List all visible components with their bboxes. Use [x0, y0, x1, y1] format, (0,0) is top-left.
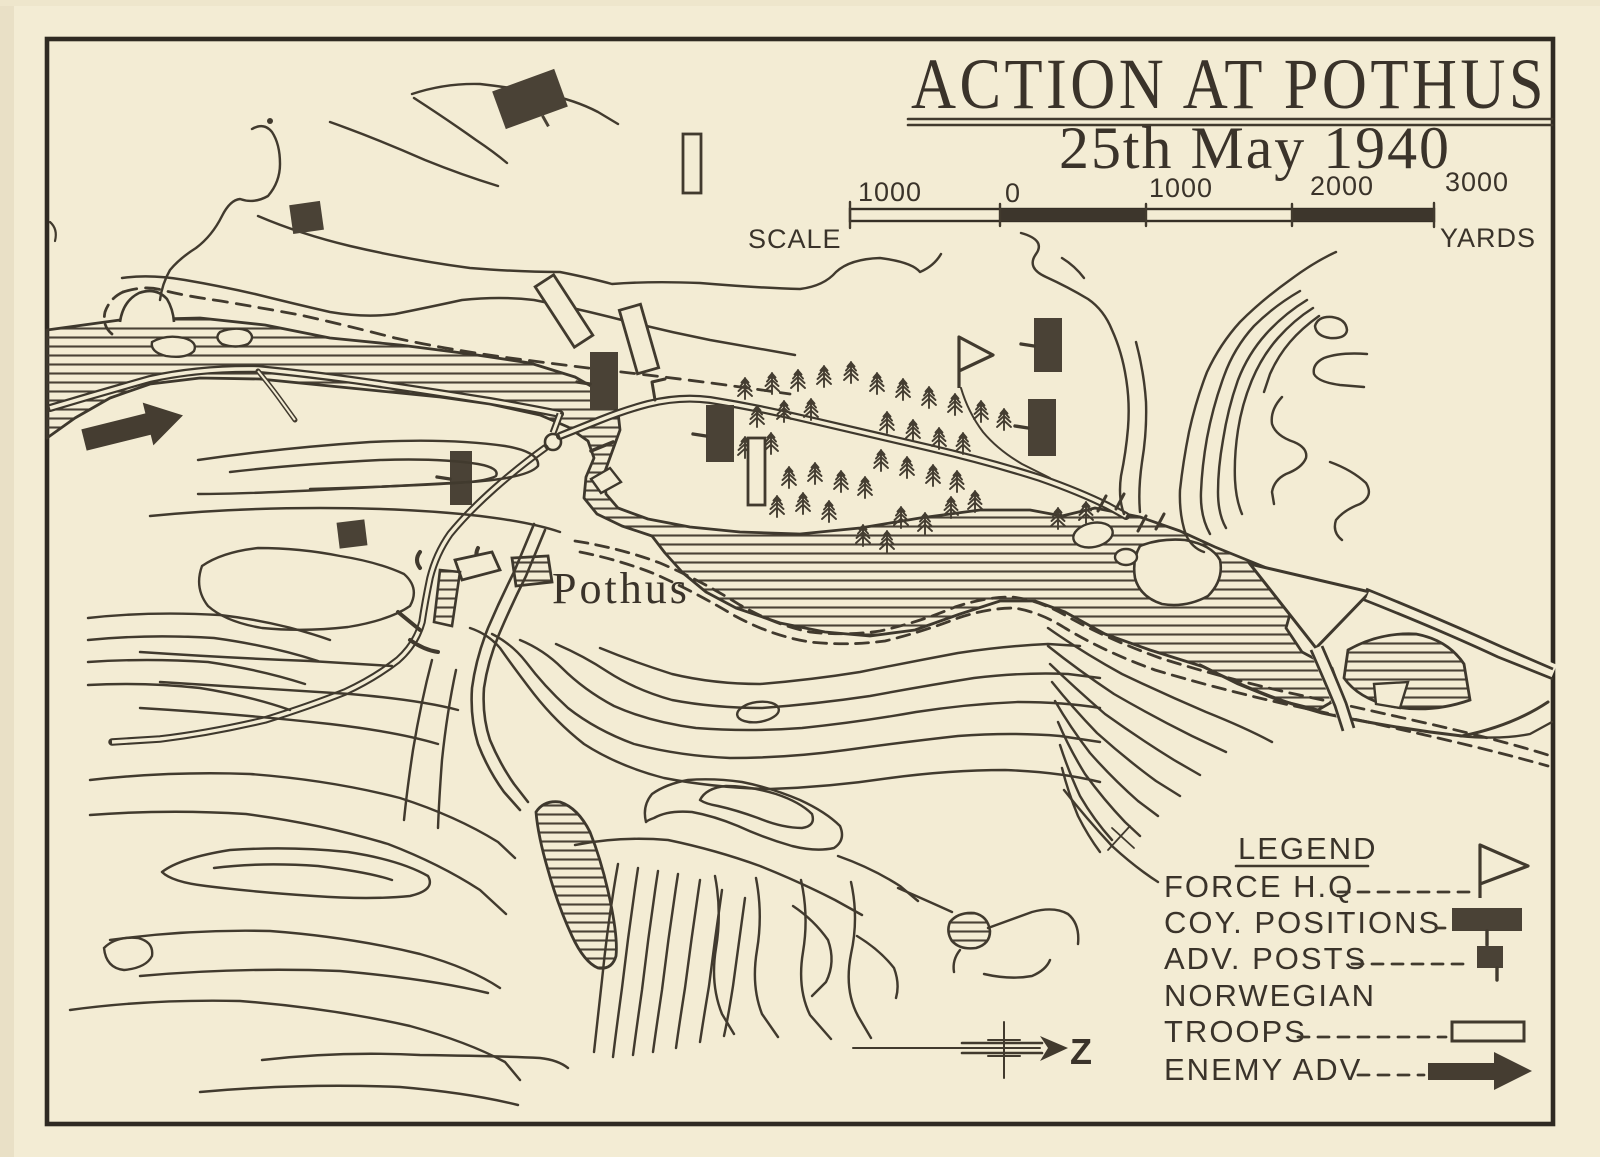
svg-text:1000: 1000: [858, 177, 922, 207]
svg-text:1000: 1000: [1149, 173, 1213, 203]
svg-text:3000: 3000: [1445, 167, 1509, 197]
svg-text:ADV. POSTS: ADV. POSTS: [1164, 941, 1367, 976]
svg-text:TROOPS: TROOPS: [1164, 1014, 1307, 1049]
svg-text:Pothus: Pothus: [552, 564, 690, 613]
svg-text:FORCE H.Q: FORCE H.Q: [1164, 869, 1354, 904]
svg-text:SCALE: SCALE: [748, 224, 842, 254]
svg-text:NORWEGIAN: NORWEGIAN: [1164, 978, 1376, 1013]
svg-text:25th May 1940: 25th May 1940: [1059, 115, 1451, 181]
svg-text:0: 0: [1005, 178, 1021, 208]
svg-text:YARDS: YARDS: [1440, 223, 1536, 253]
svg-text:Z: Z: [1070, 1031, 1092, 1072]
svg-text:LEGEND: LEGEND: [1238, 831, 1377, 866]
svg-text:ACTION AT POTHUS: ACTION AT POTHUS: [911, 44, 1547, 124]
svg-text:ENEMY ADV: ENEMY ADV: [1164, 1052, 1362, 1087]
svg-text:COY. POSITIONS: COY. POSITIONS: [1164, 905, 1441, 940]
svg-text:2000: 2000: [1310, 171, 1374, 201]
